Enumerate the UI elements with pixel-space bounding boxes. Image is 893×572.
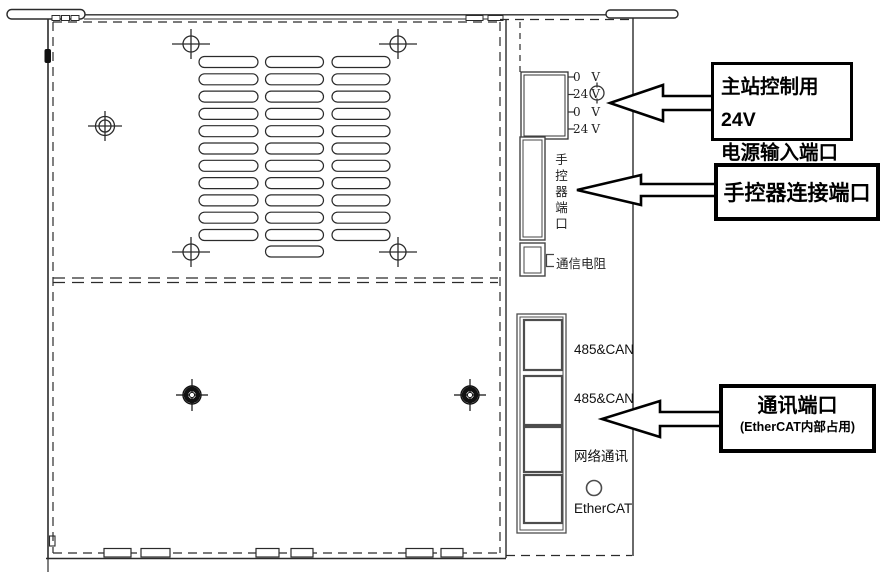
vent-slot <box>266 57 324 68</box>
comm-resistor-slot <box>520 243 554 276</box>
callout-power-input: 主站控制用24V 电源输入端口 <box>711 62 853 141</box>
vent-slot <box>199 160 258 171</box>
vent-slot <box>266 91 324 102</box>
pin-label-0v-1: 0V <box>573 71 600 83</box>
vent-slot <box>332 195 390 206</box>
callout-hand-label: 手控器连接端口 <box>724 177 871 207</box>
vent-slot <box>199 195 258 206</box>
vent-slot <box>332 178 390 189</box>
vent-slot <box>266 195 324 206</box>
vent-slot <box>332 74 390 85</box>
vent-slot <box>266 108 324 119</box>
vent-slot <box>199 143 258 154</box>
port-label-network: 网络通讯 <box>574 445 628 465</box>
callout-comm-subtitle: (EtherCAT内部占用) <box>723 418 872 436</box>
callout-power-line1: 主站控制用24V <box>721 71 846 137</box>
vent-slot <box>266 178 324 189</box>
vent-slot <box>332 160 390 171</box>
callout-arrow-power <box>610 85 713 121</box>
port-label-485can-2: 485&CAN <box>574 391 634 406</box>
panel-divider-line <box>53 278 498 283</box>
left-edge-hook <box>50 536 56 546</box>
resistor-label-bracket <box>547 255 555 267</box>
pin-label-24v-2: 24V <box>573 123 600 135</box>
vent-slot <box>199 57 258 68</box>
comm-resistor-label: 通信电阻 <box>556 253 606 272</box>
vent-slot <box>266 246 324 257</box>
vent-slot <box>199 126 258 137</box>
vent-slot <box>332 230 390 241</box>
callout-arrow-hand-controller <box>577 175 716 205</box>
vent-slot <box>199 108 258 119</box>
port-network <box>524 427 562 472</box>
port-label-ethercat: EtherCAT <box>574 501 632 516</box>
callout-hand-controller: 手控器连接端口 <box>714 163 880 221</box>
left-edge-clip <box>45 49 52 63</box>
vent-slot <box>332 57 390 68</box>
device-diagram: 0V 24V 0V 24V 手控器端口 通信电阻 485&CAN 485&CAN… <box>0 0 893 572</box>
callout-arrow-comm <box>602 401 721 437</box>
vent-slot <box>266 160 324 171</box>
vent-slot <box>199 74 258 85</box>
vent-slot <box>332 91 390 102</box>
callout-comm-ports: 通讯端口 (EtherCAT内部占用) <box>719 384 876 453</box>
ethercat-indicator-circle <box>587 481 602 496</box>
hand-controller-port-slot <box>520 137 545 240</box>
vent-slot <box>332 143 390 154</box>
pin-label-24v-1: 24V <box>573 88 600 100</box>
vent-slot <box>199 91 258 102</box>
flange-tabs <box>52 16 503 21</box>
port-485can-2 <box>524 376 562 425</box>
vent-slot <box>332 108 390 119</box>
pin-label-0v-2: 0V <box>573 106 600 118</box>
vent-slot <box>266 74 324 85</box>
vent-slot <box>266 143 324 154</box>
vent-slot <box>199 212 258 223</box>
vent-slot <box>266 126 324 137</box>
vent-slot <box>199 230 258 241</box>
port-ethercat <box>524 475 562 523</box>
top-flange <box>7 10 678 21</box>
vent-slot <box>266 212 324 223</box>
callout-comm-title: 通讯端口 <box>723 394 872 418</box>
hand-controller-port-label: 手控器端口 <box>551 153 570 243</box>
port-485can-1 <box>524 320 562 370</box>
double-circle-hole <box>88 111 122 141</box>
vent-slot <box>332 126 390 137</box>
port-label-485can-1: 485&CAN <box>574 342 634 357</box>
vent-slot <box>199 178 258 189</box>
vent-slot <box>332 212 390 223</box>
vent-slot <box>266 230 324 241</box>
vent-grid <box>199 57 390 258</box>
